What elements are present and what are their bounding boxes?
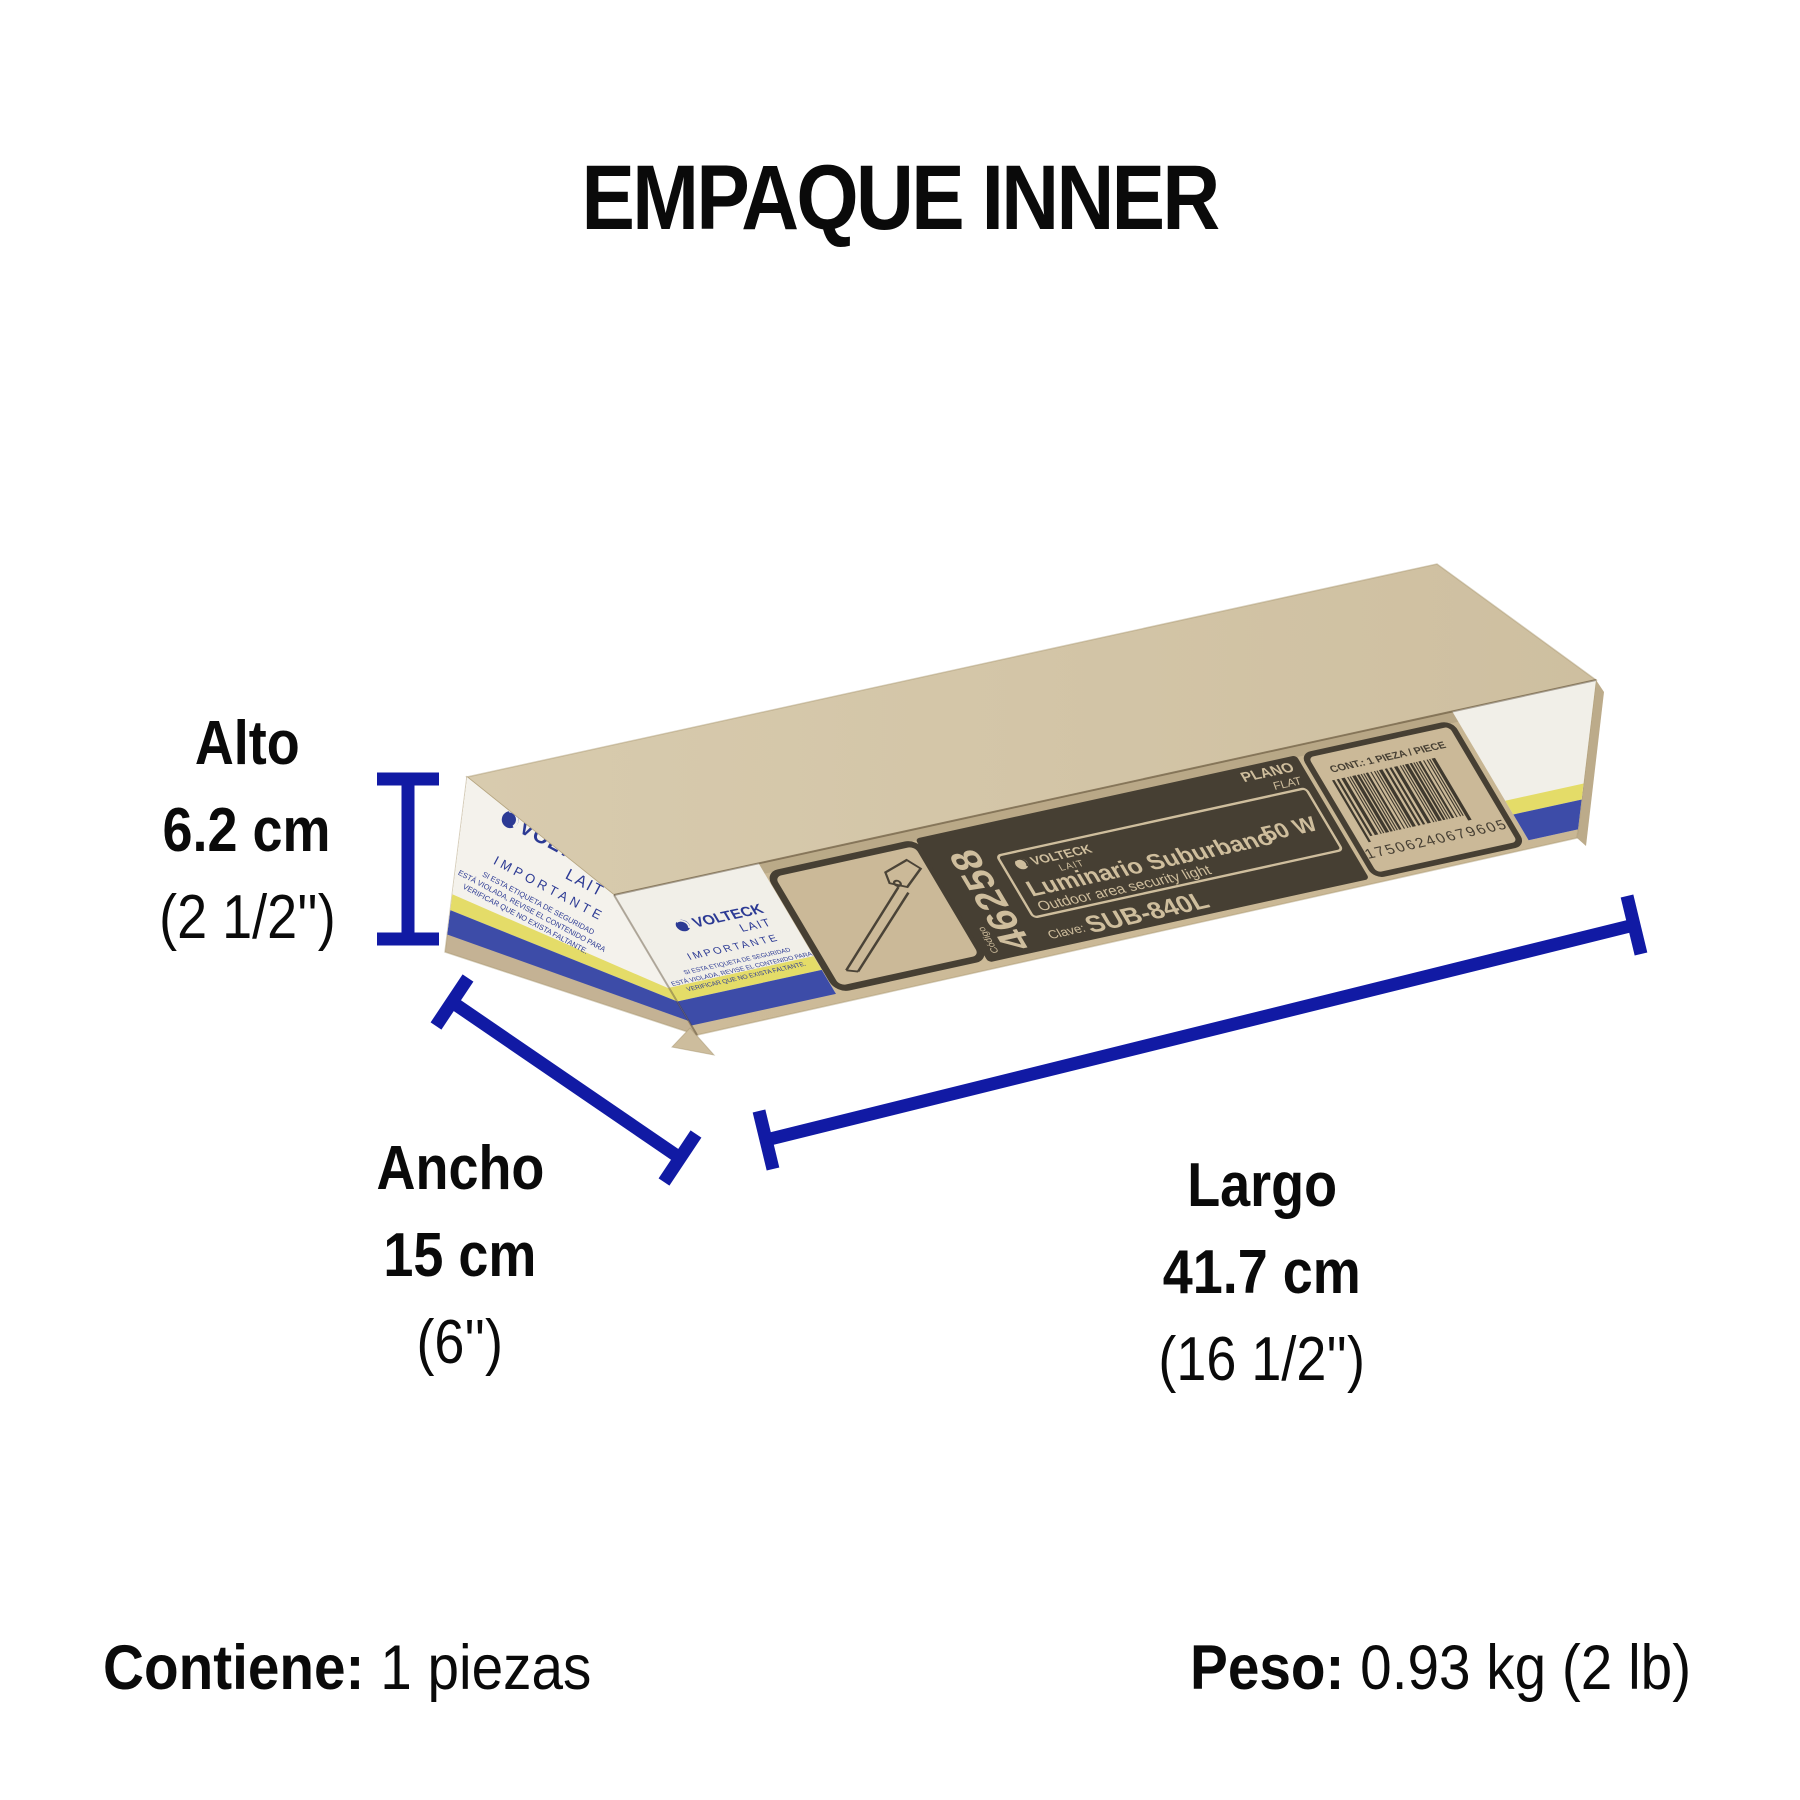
alto-inches: (2 1/2'') [159, 874, 336, 961]
ancho-dimension-label: Ancho 15 cm (6'') [285, 1125, 635, 1386]
alto-value: 6.2 cm [163, 787, 331, 874]
ancho-label: Ancho [376, 1125, 544, 1212]
largo-inches: (16 1/2'') [1159, 1316, 1365, 1403]
largo-label: Largo [1187, 1142, 1337, 1229]
weight-label: Peso: [1190, 1633, 1344, 1703]
largo-right-cap [1627, 896, 1641, 954]
weight-value: 0.93 kg (2 lb) [1344, 1633, 1691, 1703]
contains-label: Contiene: [103, 1633, 364, 1703]
largo-left-cap [759, 1111, 773, 1169]
ancho-value: 15 cm [384, 1212, 537, 1299]
largo-value: 41.7 cm [1163, 1229, 1361, 1316]
ancho-inches: (6'') [417, 1299, 504, 1386]
inner-box: VOLTECK LAIT IMPORTANTE SI ESTA ETIQUETA… [445, 564, 1687, 1055]
alto-label: Alto [195, 700, 300, 787]
contains-row: Contiene: 1 piezas [103, 1632, 646, 1704]
contains-value: 1 piezas [364, 1633, 591, 1703]
weight-row: Peso: 0.93 kg (2 lb) [1190, 1632, 1747, 1704]
largo-dimension-label: Largo 41.7 cm (16 1/2'') [1077, 1142, 1447, 1403]
alto-dimension-label: Alto 6.2 cm (2 1/2'') [62, 700, 432, 961]
